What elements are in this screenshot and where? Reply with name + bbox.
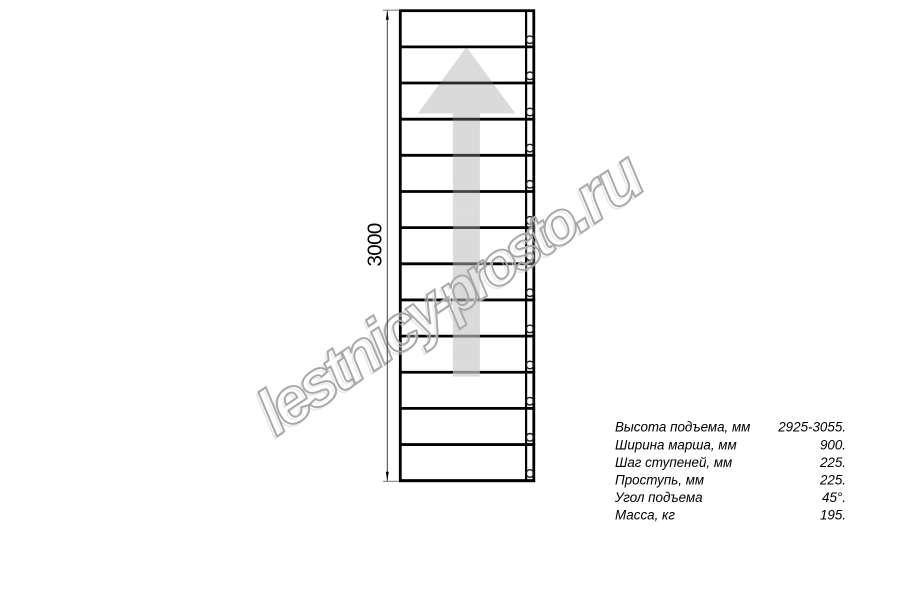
svg-text:Ширина марша, мм: Ширина марша, мм bbox=[615, 437, 737, 452]
svg-text:225.: 225. bbox=[819, 472, 846, 487]
svg-text:Шаг ступеней, мм: Шаг ступеней, мм bbox=[615, 455, 732, 470]
svg-text:Проступь, мм: Проступь, мм bbox=[615, 472, 704, 487]
svg-text:45°.: 45°. bbox=[822, 490, 846, 505]
svg-text:3000: 3000 bbox=[364, 223, 387, 266]
svg-text:Высота подъема, мм: Высота подъема, мм bbox=[615, 420, 750, 435]
svg-text:2925-3055.: 2925-3055. bbox=[777, 420, 846, 435]
svg-text:Угол подъема: Угол подъема bbox=[614, 490, 703, 505]
svg-text:900.: 900. bbox=[820, 437, 846, 452]
svg-text:Масса, кг: Масса, кг bbox=[615, 508, 675, 523]
svg-text:225.: 225. bbox=[819, 455, 846, 470]
svg-text:195.: 195. bbox=[820, 508, 846, 523]
